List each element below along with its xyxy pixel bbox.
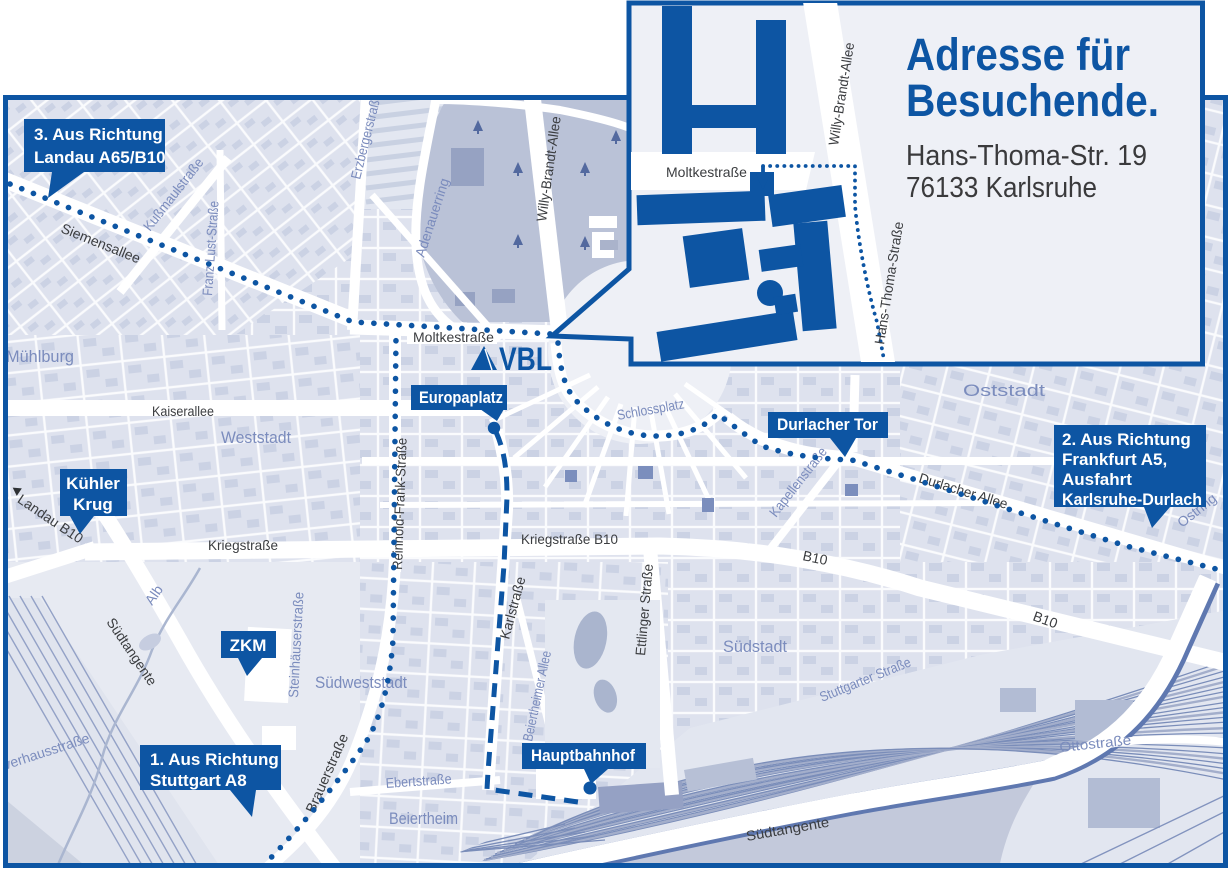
svg-text:Karlsruhe-Durlach: Karlsruhe-Durlach <box>1062 490 1202 509</box>
svg-text:Ausfahrt: Ausfahrt <box>1062 470 1132 489</box>
svg-text:Durlacher Tor: Durlacher Tor <box>777 415 878 434</box>
svg-text:Moltkestraße: Moltkestraße <box>666 164 747 180</box>
svg-text:VBL: VBL <box>499 341 552 377</box>
svg-text:Kriegstraße: Kriegstraße <box>208 537 278 553</box>
svg-text:Südstadt: Südstadt <box>723 637 787 656</box>
svg-text:Kaiserallee: Kaiserallee <box>152 403 214 419</box>
svg-text:Mühlburg: Mühlburg <box>6 347 74 366</box>
svg-text:Landau A65/B10: Landau A65/B10 <box>34 148 166 167</box>
svg-text:Hans-Thoma-Str. 19: Hans-Thoma-Str. 19 <box>906 140 1147 172</box>
svg-text:1. Aus Richtung: 1. Aus Richtung <box>150 750 279 769</box>
svg-text:76133 Karlsruhe: 76133 Karlsruhe <box>906 172 1097 204</box>
svg-text:Adresse für: Adresse für <box>906 29 1130 80</box>
svg-text:Südweststadt: Südweststadt <box>315 673 407 692</box>
svg-text:Krug: Krug <box>73 495 113 514</box>
svg-text:2. Aus Richtung: 2. Aus Richtung <box>1062 430 1191 449</box>
svg-text:Weststadt: Weststadt <box>221 428 291 447</box>
svg-text:3. Aus Richtung: 3. Aus Richtung <box>34 125 163 144</box>
svg-text:Europaplatz: Europaplatz <box>419 388 503 407</box>
svg-text:Besuchende.: Besuchende. <box>906 75 1159 126</box>
svg-text:Kühler: Kühler <box>66 474 120 493</box>
svg-text:Oststadt: Oststadt <box>963 381 1045 400</box>
svg-text:Kriegstraße B10: Kriegstraße B10 <box>521 531 618 547</box>
svg-text:ZKM: ZKM <box>230 636 267 655</box>
svg-text:Frankfurt A5,: Frankfurt A5, <box>1062 450 1167 469</box>
svg-text:Hauptbahnhof: Hauptbahnhof <box>531 746 635 765</box>
svg-text:Beiertheim: Beiertheim <box>389 809 458 828</box>
svg-text:Moltkestraße: Moltkestraße <box>413 329 494 345</box>
svg-text:Stuttgart A8: Stuttgart A8 <box>150 771 247 790</box>
